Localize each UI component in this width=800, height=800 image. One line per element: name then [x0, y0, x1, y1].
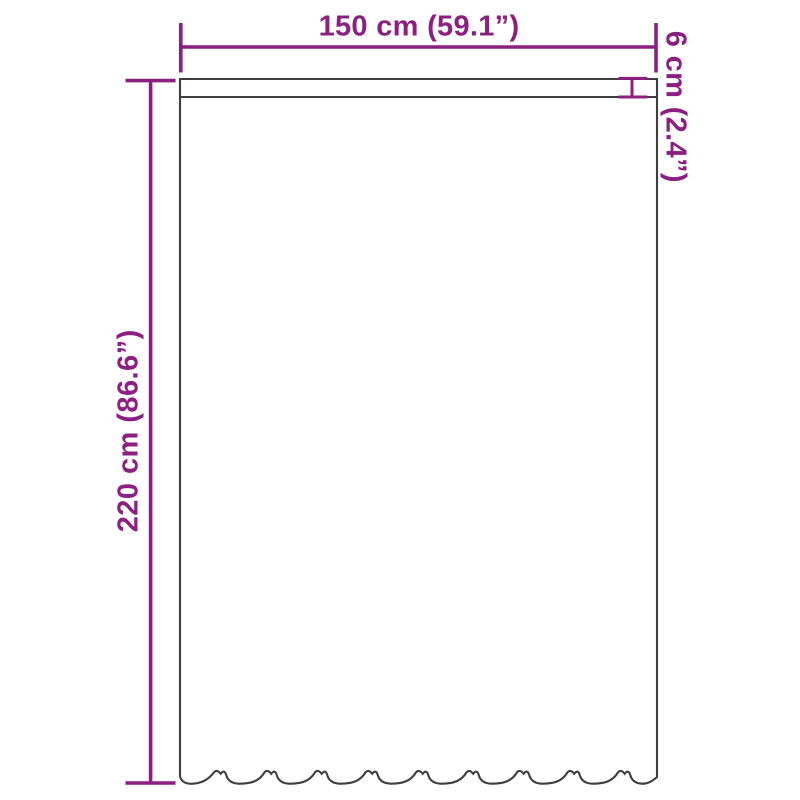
svg-text:220 cm (86.6”): 220 cm (86.6”) — [112, 329, 144, 532]
svg-text:6 cm (2.4”): 6 cm (2.4”) — [660, 31, 692, 183]
svg-text:150 cm (59.1”): 150 cm (59.1”) — [319, 11, 520, 43]
